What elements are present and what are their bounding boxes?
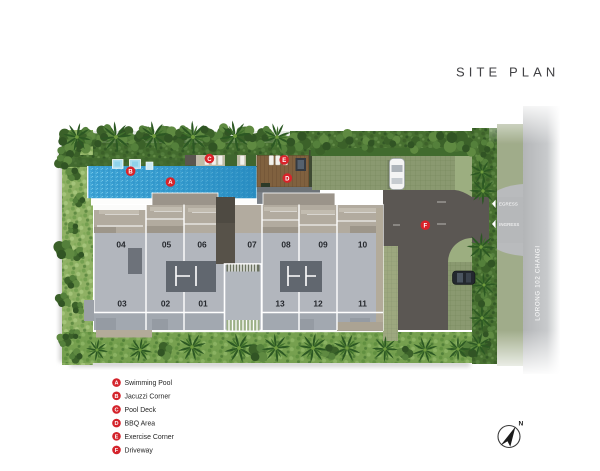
svg-text:BBQ Area: BBQ Area bbox=[125, 421, 156, 428]
svg-text:LORONG 102 CHANGI: LORONG 102 CHANGI bbox=[535, 245, 542, 321]
svg-text:12: 12 bbox=[313, 299, 323, 309]
svg-text:04: 04 bbox=[116, 240, 126, 250]
svg-text:E: E bbox=[282, 158, 286, 164]
svg-text:11: 11 bbox=[358, 299, 367, 309]
svg-text:03: 03 bbox=[117, 299, 127, 309]
svg-text:Swimming Pool: Swimming Pool bbox=[125, 380, 173, 387]
svg-text:EGRESS: EGRESS bbox=[499, 202, 518, 207]
svg-text:C: C bbox=[207, 157, 212, 163]
svg-text:08: 08 bbox=[281, 240, 291, 250]
svg-text:10: 10 bbox=[358, 240, 368, 250]
svg-text:D: D bbox=[114, 421, 118, 427]
svg-text:13: 13 bbox=[275, 299, 285, 309]
svg-text:07: 07 bbox=[247, 240, 257, 250]
svg-text:Driveway: Driveway bbox=[125, 447, 154, 454]
svg-text:09: 09 bbox=[318, 240, 328, 250]
svg-text:SITE PLAN: SITE PLAN bbox=[456, 65, 559, 80]
svg-text:A: A bbox=[168, 180, 173, 186]
svg-text:N: N bbox=[519, 421, 524, 428]
svg-text:A: A bbox=[114, 381, 118, 387]
svg-text:06: 06 bbox=[197, 240, 207, 250]
svg-text:F: F bbox=[115, 448, 119, 454]
svg-text:C: C bbox=[114, 407, 118, 413]
svg-text:F: F bbox=[423, 223, 427, 229]
svg-text:01: 01 bbox=[198, 299, 208, 309]
svg-text:INGRESS: INGRESS bbox=[499, 222, 519, 227]
svg-text:05: 05 bbox=[162, 240, 172, 250]
svg-text:Exercise Corner: Exercise Corner bbox=[125, 434, 175, 441]
svg-text:B: B bbox=[128, 169, 133, 175]
svg-text:Pool Deck: Pool Deck bbox=[125, 407, 157, 414]
svg-text:E: E bbox=[115, 434, 119, 440]
svg-text:B: B bbox=[114, 394, 118, 400]
svg-text:02: 02 bbox=[161, 299, 171, 309]
svg-text:D: D bbox=[285, 176, 290, 182]
svg-text:Jacuzzi Corner: Jacuzzi Corner bbox=[125, 393, 172, 400]
